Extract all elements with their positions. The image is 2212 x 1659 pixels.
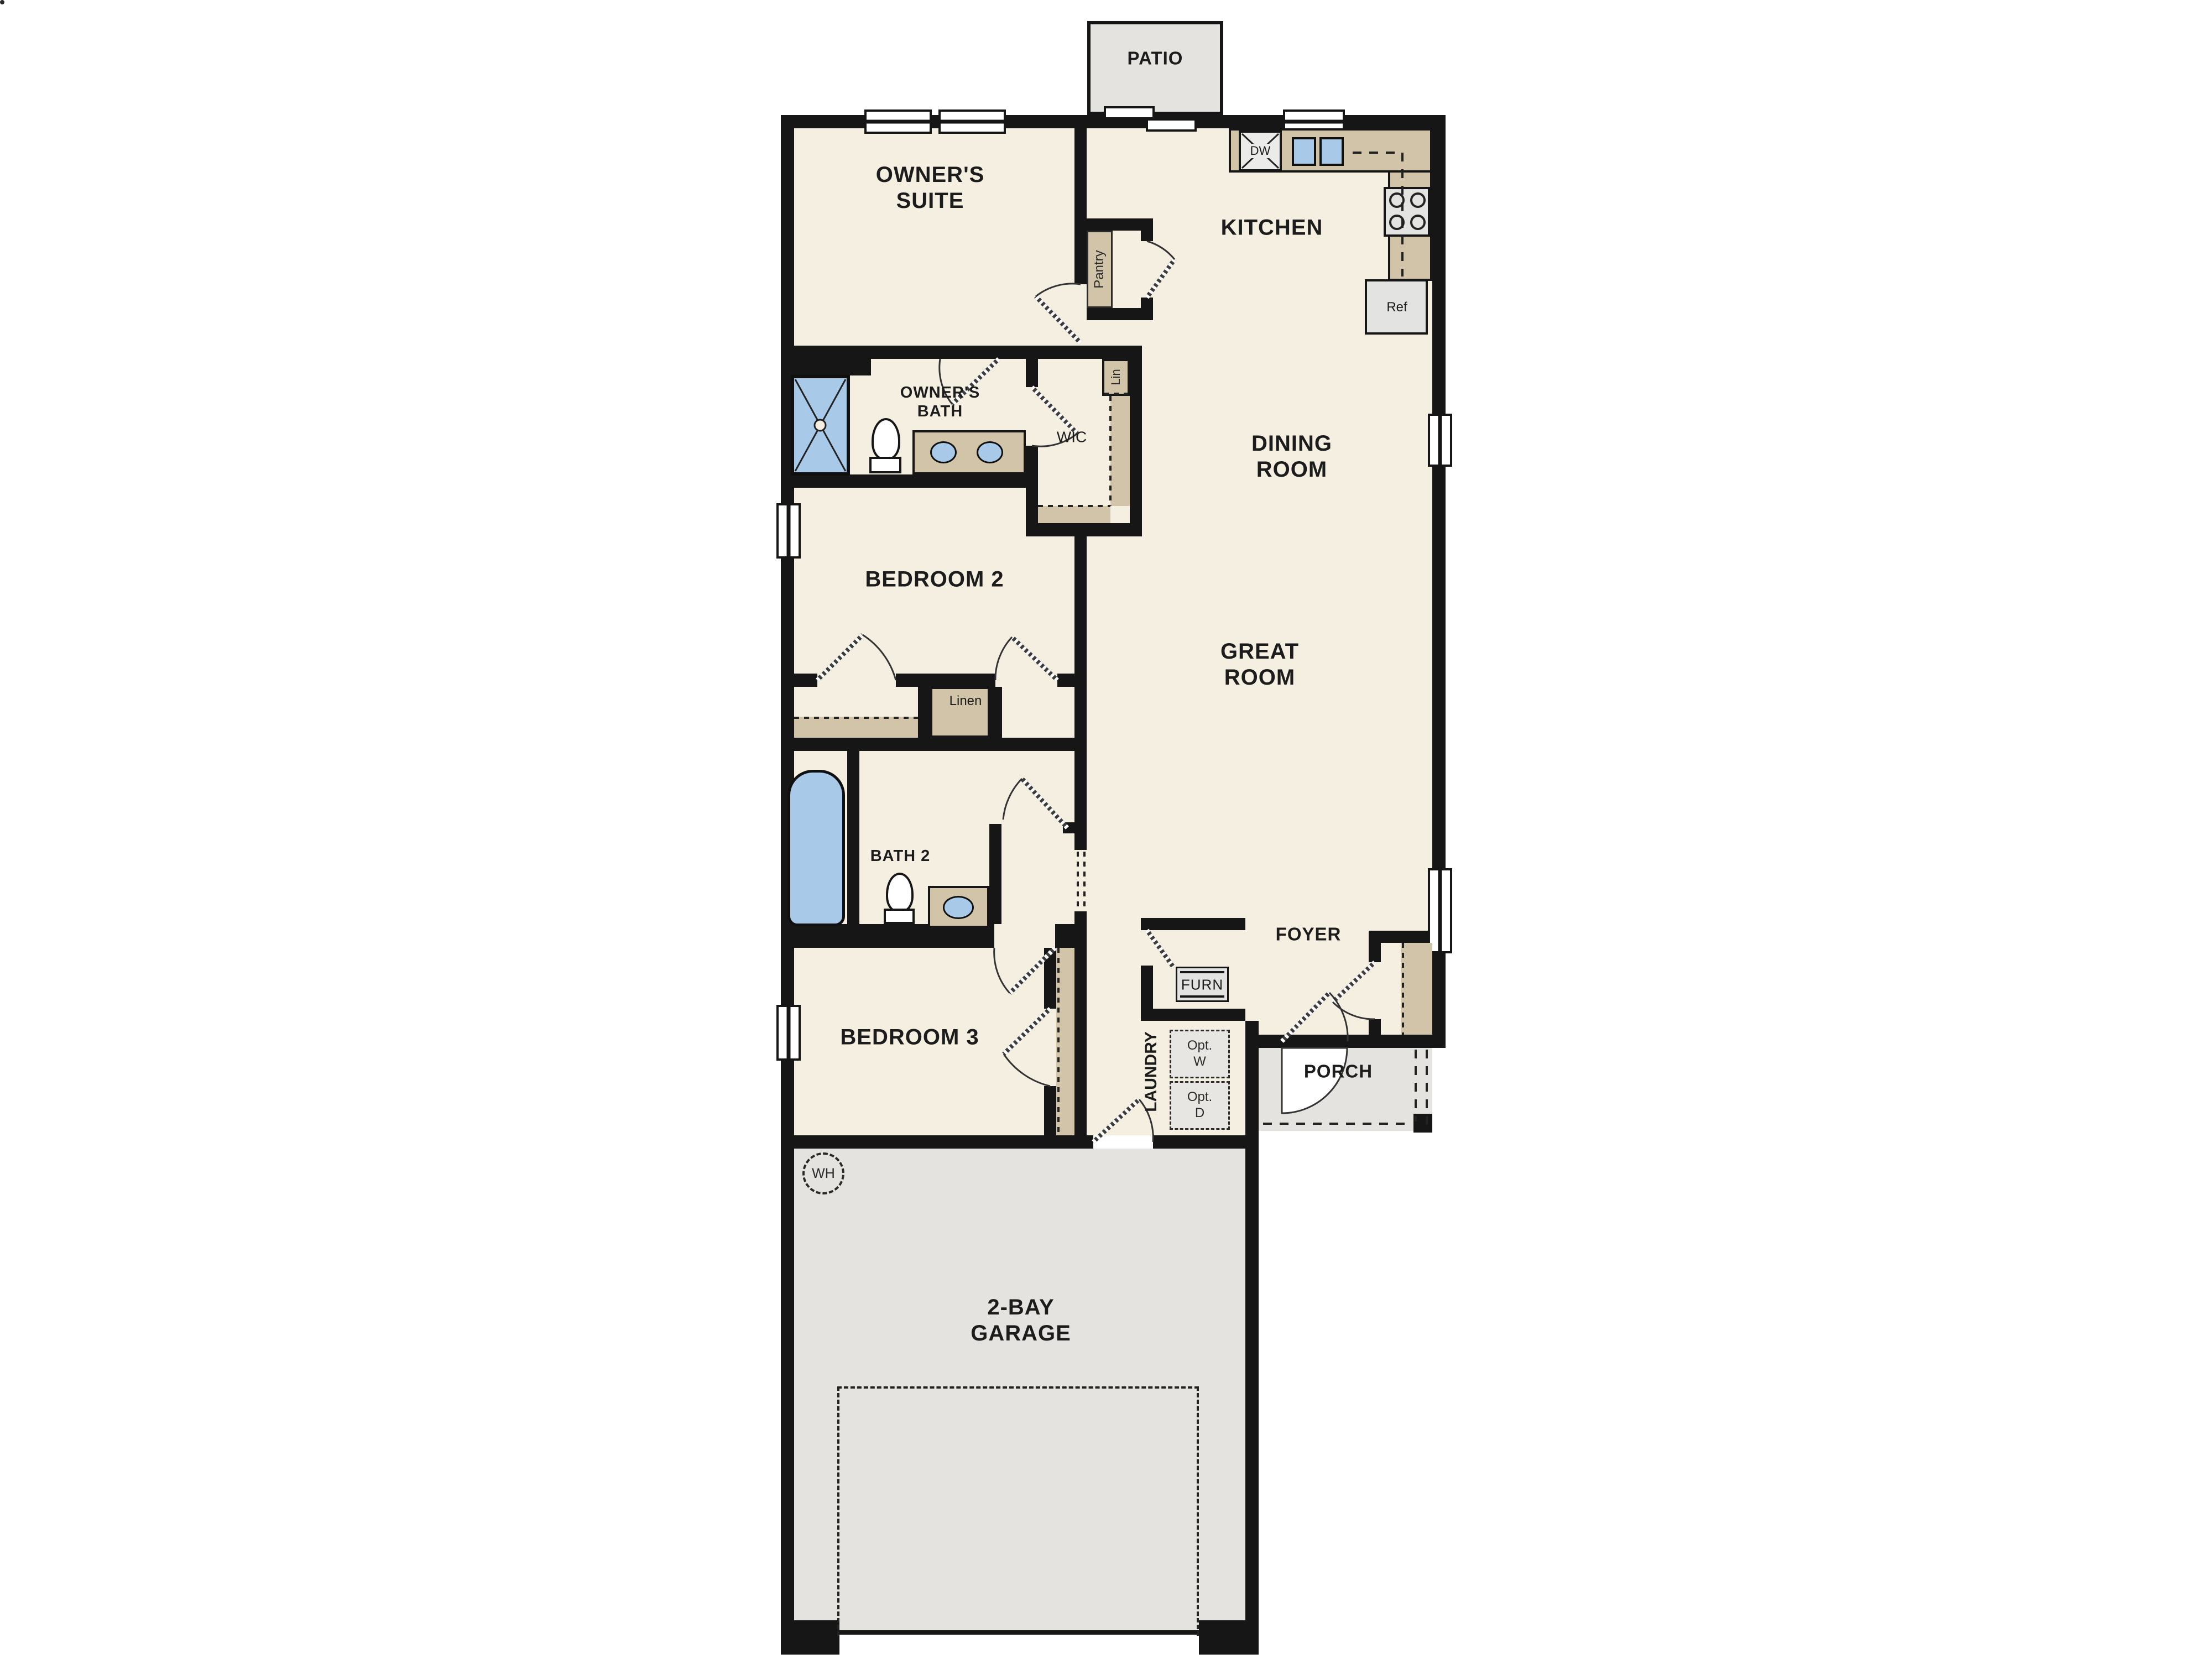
garage-label: 2-BAY GARAGE	[971, 1295, 1071, 1347]
ref-label: Ref	[1386, 300, 1407, 315]
lin-label: Lin	[1109, 369, 1123, 385]
great-room-label: GREAT ROOM	[1220, 639, 1299, 691]
kitchen-upper-cabinet-dash	[1353, 153, 1402, 276]
owners-suite-label: OWNER'S SUITE	[876, 162, 985, 214]
wh-label: WH	[812, 1166, 835, 1182]
dining-room-label: DINING ROOM	[1251, 431, 1332, 483]
furn-label: FURN	[1181, 977, 1223, 994]
dw-label: DW	[1249, 144, 1272, 158]
water-heater-circle: WH	[802, 1152, 844, 1194]
wic-label: WIC	[1057, 427, 1087, 446]
hall-opening-dash	[1078, 852, 1084, 910]
owners-bath-label: OWNER'S BATH	[900, 383, 980, 421]
floor-plan-page: { "plan_title": "single-story floor plan…	[0, 0, 2212, 1659]
porch-label: PORCH	[1304, 1061, 1373, 1083]
bath2-label: BATH 2	[870, 847, 931, 865]
shower-glass-icon	[795, 379, 846, 471]
stove-burners-icon	[1390, 194, 1425, 229]
bedroom2-label: BEDROOM 2	[865, 566, 1004, 592]
pantry-label: Pantry	[1092, 250, 1107, 288]
laundry-label: LAUNDRY	[1142, 1031, 1161, 1112]
linen-label: Linen	[950, 693, 982, 709]
foyer-label: FOYER	[1276, 924, 1342, 946]
kitchen-label: KITCHEN	[1221, 215, 1323, 241]
plan-linework-overlay	[0, 0, 2212, 1659]
bedroom3-label: BEDROOM 3	[840, 1024, 979, 1050]
wic-rod-dash	[1038, 396, 1110, 506]
patio-label: PATIO	[1128, 48, 1183, 70]
